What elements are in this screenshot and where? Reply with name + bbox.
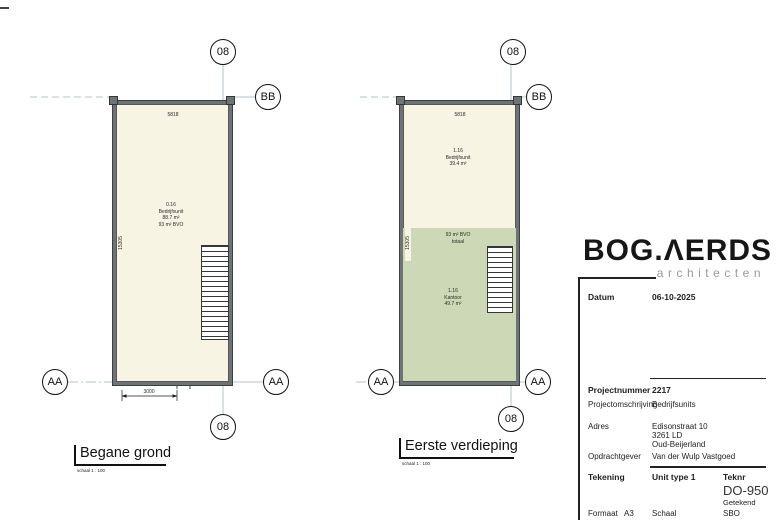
teknr-label: Teknr <box>723 472 746 482</box>
schaal-label: Schaal <box>652 509 676 518</box>
datum-value: 06-10-2025 <box>652 292 695 302</box>
column-post <box>513 96 522 105</box>
grid-marker-AA-left: AA <box>42 369 68 395</box>
staircase-first <box>487 246 513 313</box>
bogaerds-logo: BOG.ΛERDS <box>583 234 765 268</box>
gross-area-note: 93 m² BVO totaal <box>425 232 491 245</box>
grid-marker-AA-right: AA <box>525 369 551 395</box>
adres-line3: Oud-Beijerland <box>652 440 705 449</box>
projectomschrijving-label: Projectomschrijving <box>588 400 657 409</box>
grid-marker-BB: BB <box>526 84 552 110</box>
titleblock-rule-project <box>650 378 766 379</box>
grid-marker-AA-right: AA <box>263 369 289 395</box>
logo-dot: . <box>654 234 663 267</box>
dim-door-ground: 3000 <box>136 389 162 395</box>
caption-tick <box>74 445 76 466</box>
titleblock-left-border <box>578 277 580 520</box>
plan-scale-first: schaal 1 : 100 <box>402 461 430 466</box>
opdrachtgever-label: Opdrachtgever <box>588 452 641 461</box>
formaat-label: Formaat <box>588 509 618 518</box>
room-label-first-top: 1.16 Bedrijfsunit 39.4 m² <box>425 148 491 168</box>
getekend-label: Getekend <box>723 498 756 507</box>
grid-marker-BB: BB <box>255 84 281 110</box>
grid-marker-08-top: 08 <box>500 39 526 65</box>
room-label-ground: 0.16 Bedrijfsunit 88.7 m² 93 m² BVO <box>138 202 204 228</box>
dim-width-first: 5818 <box>440 112 480 118</box>
dim-height-ground: 15305 <box>118 225 124 261</box>
adres-label: Adres <box>588 422 609 431</box>
opdrachtgever-value: Van der Wulp Vastgoed <box>652 452 735 461</box>
grid-marker-08-bottom: 08 <box>498 406 524 432</box>
logo-rest: ΛERDS <box>664 234 772 267</box>
building-outline-ground <box>112 100 233 386</box>
datum-label: Datum <box>588 292 614 302</box>
grid-marker-08-bottom: 08 <box>210 414 236 440</box>
plan-title-first: Eerste verdieping <box>405 438 518 454</box>
projectomschrijving-value: Bedrijfsunits <box>652 400 696 409</box>
caption-tick <box>399 438 401 459</box>
plan-title-ground: Begane grond <box>80 445 171 461</box>
drawing-sheet: 5818 15305 3000 0.16 Bedrijfsunit 88.7 m… <box>0 0 780 520</box>
formaat-value: A3 <box>624 509 634 518</box>
projectnummer-value: 2217 <box>652 385 671 395</box>
tekening-value: Unit type 1 <box>652 472 695 482</box>
adres-line2: 3261 LD <box>652 431 682 440</box>
staircase-ground <box>201 245 229 340</box>
titleblock-rule-top <box>578 277 656 279</box>
tekening-label: Tekening <box>588 472 625 482</box>
grid-marker-08-top: 08 <box>210 39 236 65</box>
getekend-value: SBO <box>723 509 740 518</box>
projectnummer-label: Projectnummer <box>588 385 650 395</box>
room-bedrijfsunit-ground <box>116 104 229 382</box>
grid-marker-AA-left: AA <box>368 369 394 395</box>
adres-line1: Edisonstraat 10 <box>652 422 708 431</box>
sheet-frame-tick <box>0 7 9 9</box>
logo-text: BOG <box>583 234 654 267</box>
caption-underline <box>399 457 514 459</box>
dim-height-first: 15305 <box>405 225 411 261</box>
column-post <box>109 96 118 105</box>
column-post <box>226 96 235 105</box>
logo-subtitle: architecten <box>657 266 765 280</box>
column-post <box>396 96 405 105</box>
caption-underline <box>74 464 166 466</box>
titleblock-rule-tekening <box>650 466 766 468</box>
plan-scale-ground: schaal 1 : 100 <box>77 468 105 473</box>
dim-width-ground: 5818 <box>153 112 193 118</box>
room-label-first-bottom: 1.16 Kantoor 49.7 m² <box>420 288 486 308</box>
teknr-value: DO-950 <box>723 483 769 498</box>
